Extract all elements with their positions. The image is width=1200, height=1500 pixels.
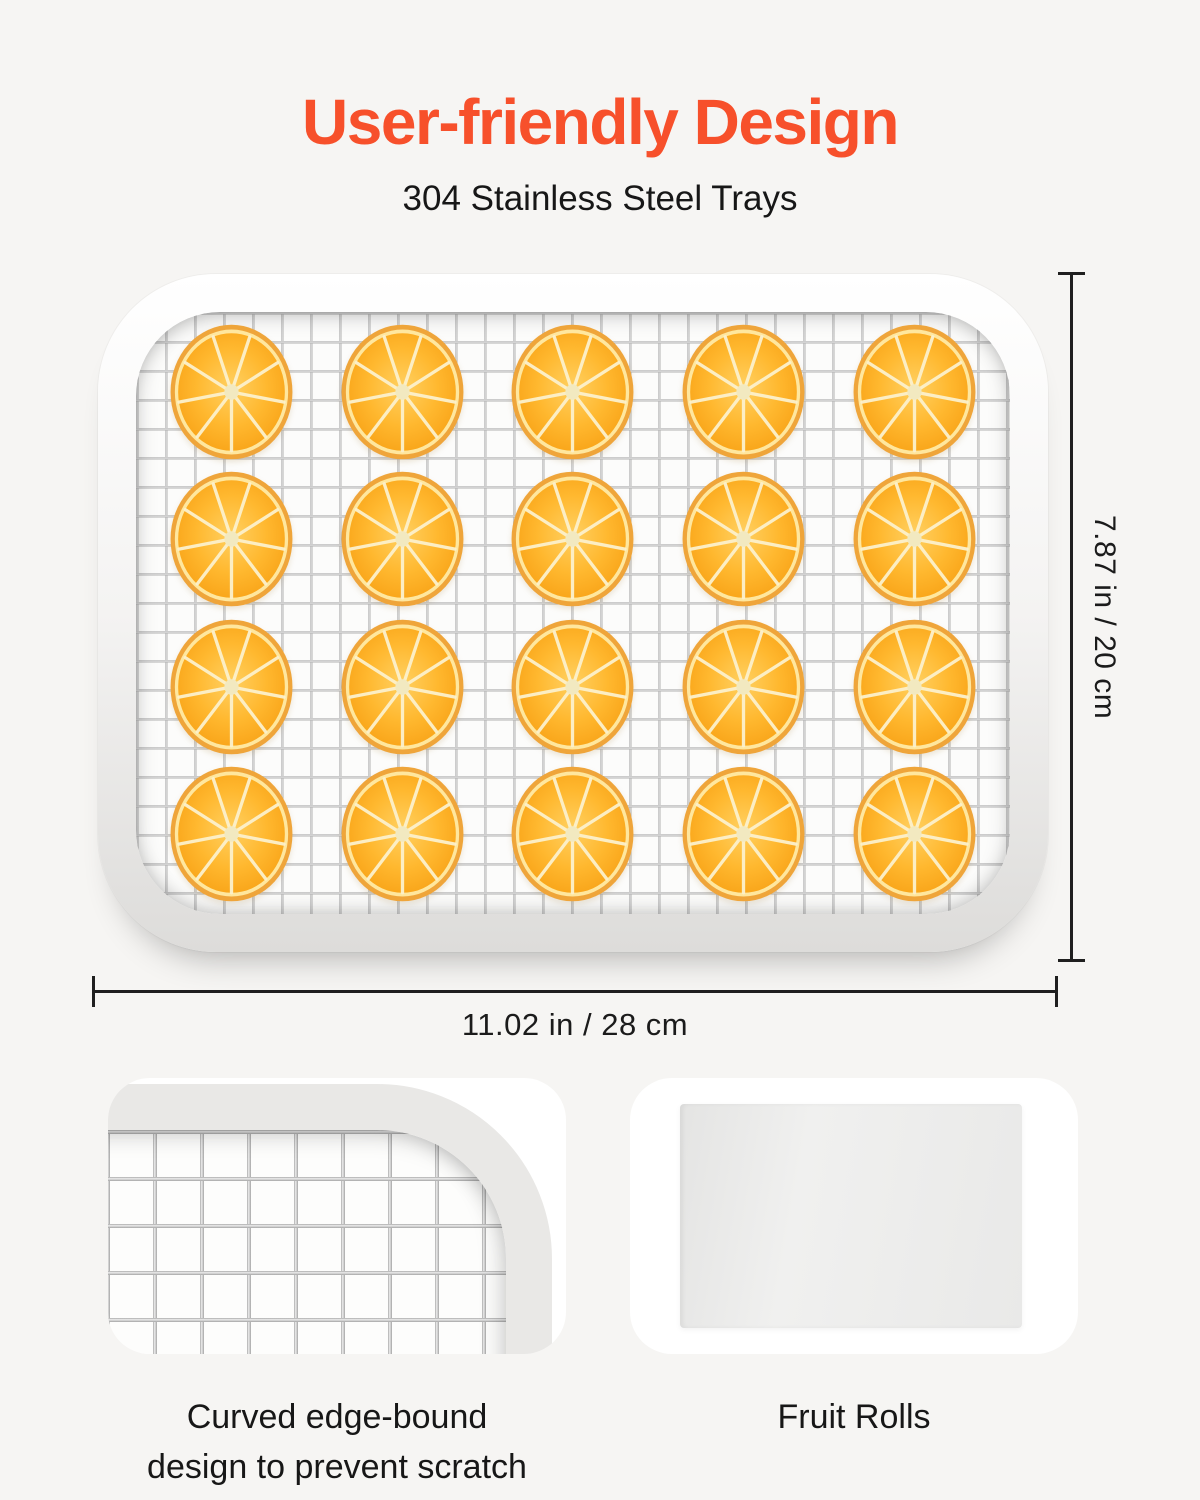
fruit-roll-sheet-image bbox=[680, 1104, 1022, 1328]
height-dimension-label: 7.87 in / 20 cm bbox=[1084, 273, 1124, 961]
orange-slice bbox=[851, 323, 978, 461]
orange-slice bbox=[509, 323, 636, 461]
orange-slice bbox=[168, 765, 295, 903]
caption-line: design to prevent scratch bbox=[108, 1442, 566, 1492]
orange-slice bbox=[680, 618, 807, 756]
curved-edge-closeup-image bbox=[108, 1084, 552, 1354]
orange-slice bbox=[339, 470, 466, 608]
orange-slice bbox=[851, 618, 978, 756]
width-dimension-label: 11.02 in / 28 cm bbox=[92, 1007, 1058, 1043]
height-dimension-line bbox=[1070, 273, 1073, 961]
orange-slice bbox=[851, 765, 978, 903]
width-dimension-cap-left bbox=[92, 976, 95, 1007]
width-dimension-cap-right bbox=[1055, 976, 1058, 1007]
detail-card-curved-edge bbox=[108, 1078, 566, 1354]
height-dimension-cap-bottom bbox=[1058, 959, 1085, 962]
orange-slice bbox=[851, 470, 978, 608]
product-infographic-page: User-friendly Design 304 Stainless Steel… bbox=[0, 0, 1200, 1500]
caption-curved-edge: Curved edge-bound design to prevent scra… bbox=[108, 1392, 566, 1492]
tray-mesh-grid bbox=[136, 312, 1010, 914]
orange-slice bbox=[339, 765, 466, 903]
page-title: User-friendly Design bbox=[0, 90, 1200, 154]
orange-slice bbox=[509, 765, 636, 903]
orange-slice bbox=[339, 618, 466, 756]
orange-slice bbox=[168, 323, 295, 461]
height-dimension-cap-top bbox=[1058, 272, 1085, 275]
orange-slice bbox=[339, 323, 466, 461]
orange-slice bbox=[509, 618, 636, 756]
page-subtitle: 304 Stainless Steel Trays bbox=[0, 179, 1200, 219]
orange-slice bbox=[168, 470, 295, 608]
caption-line: Curved edge-bound bbox=[108, 1392, 566, 1442]
orange-slice bbox=[680, 323, 807, 461]
orange-slice-grid bbox=[146, 318, 1000, 908]
width-dimension-line bbox=[92, 990, 1058, 993]
caption-line: Fruit Rolls bbox=[630, 1392, 1078, 1442]
caption-fruit-rolls: Fruit Rolls bbox=[630, 1392, 1078, 1442]
orange-slice bbox=[509, 470, 636, 608]
detail-card-fruit-rolls bbox=[630, 1078, 1078, 1354]
orange-slice bbox=[680, 765, 807, 903]
orange-slice bbox=[680, 470, 807, 608]
stainless-steel-tray bbox=[98, 274, 1048, 952]
orange-slice bbox=[168, 618, 295, 756]
